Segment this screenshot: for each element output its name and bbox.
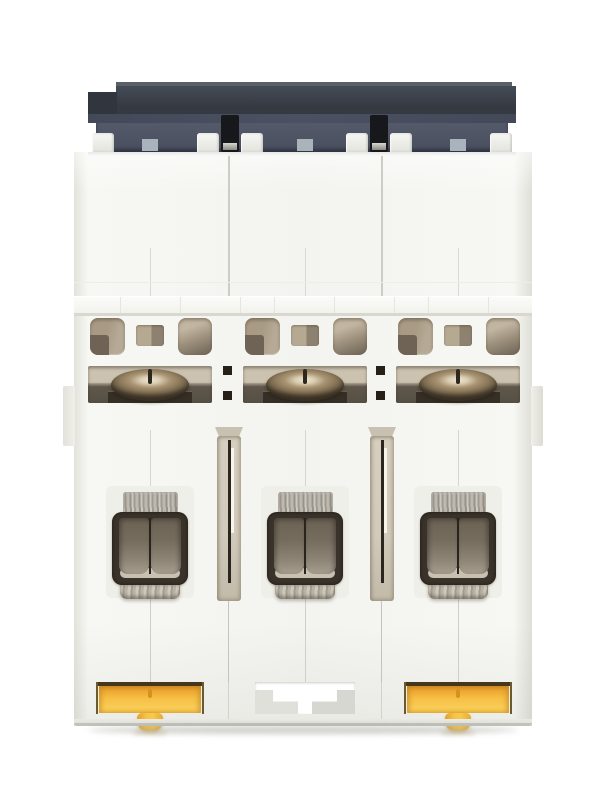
din-clip-slot-side bbox=[202, 682, 204, 714]
mold-seam-mid bbox=[458, 430, 459, 492]
mold-seam-upper bbox=[305, 248, 306, 296]
mold-seam-mid bbox=[305, 430, 306, 492]
din-clip-slot-side bbox=[510, 682, 512, 714]
terminal-cutout-c bbox=[486, 318, 520, 355]
screw-driver-slit bbox=[303, 369, 307, 384]
divider-channel-glint bbox=[231, 448, 234, 533]
ledge-seam bbox=[180, 297, 181, 313]
window-panel bbox=[427, 518, 457, 574]
divider-channel-glint bbox=[384, 448, 387, 533]
cap-layer-mid bbox=[88, 114, 516, 123]
mounting-tab bbox=[346, 133, 368, 152]
circuit-breaker bbox=[0, 0, 600, 800]
divider-square-hole bbox=[376, 391, 385, 400]
mounting-tab bbox=[92, 133, 114, 152]
pole-divider-seam-bottom bbox=[228, 682, 229, 722]
pole-divider-seam-upper bbox=[228, 156, 230, 296]
terminal-cutout-b bbox=[136, 325, 164, 346]
band-line bbox=[74, 282, 532, 283]
mounting-tab bbox=[390, 133, 412, 152]
terminal-cutout-c bbox=[333, 318, 367, 355]
window-panel bbox=[274, 518, 304, 574]
ledge-seam bbox=[334, 297, 335, 313]
din-rail-ear-left bbox=[63, 386, 75, 446]
mold-seam-upper bbox=[150, 248, 151, 296]
screw-driver-slit bbox=[456, 369, 460, 384]
din-rail-ear-right bbox=[531, 386, 543, 446]
din-clip-slot-side bbox=[404, 682, 406, 714]
mold-seam-lower bbox=[150, 597, 151, 682]
cutout-a-inner-shadow bbox=[90, 335, 109, 355]
pole-divider-seam-lower bbox=[228, 601, 229, 682]
ledge-seam bbox=[274, 297, 275, 313]
mounting-tab bbox=[241, 133, 263, 152]
window-panel bbox=[151, 518, 181, 574]
ledge-seam bbox=[394, 297, 395, 313]
mounting-tab bbox=[197, 133, 219, 152]
mold-seam-lower bbox=[305, 597, 306, 682]
pole-link-pin-glint bbox=[223, 143, 237, 150]
ledge-seam bbox=[120, 297, 121, 313]
pole-link-pin-glint bbox=[372, 143, 386, 150]
divider-square-hole bbox=[376, 366, 385, 375]
cap-slab bbox=[116, 86, 516, 114]
cutout-a-inner-shadow bbox=[398, 335, 417, 355]
divider-square-hole bbox=[223, 391, 232, 400]
ledge-seam bbox=[488, 297, 489, 313]
mold-seam-upper bbox=[458, 248, 459, 296]
pole-divider-seam-lower bbox=[381, 601, 382, 682]
ledge-seam bbox=[240, 297, 241, 313]
din-clip-slot-side bbox=[96, 682, 98, 714]
vent-slot bbox=[450, 139, 466, 151]
terminal-cutout-c bbox=[178, 318, 212, 355]
pole-divider-seam-bottom bbox=[381, 682, 382, 722]
mold-seam-lower bbox=[458, 597, 459, 682]
din-clip-mark bbox=[148, 689, 152, 698]
terminal-cutout-b bbox=[444, 325, 472, 346]
cap-slab-left-step bbox=[88, 92, 117, 114]
photo-canvas bbox=[0, 0, 600, 800]
ledge-seam bbox=[428, 297, 429, 313]
cutout-a-inner-shadow bbox=[245, 335, 264, 355]
screw-driver-slit bbox=[148, 369, 152, 384]
vent-slot bbox=[297, 139, 313, 151]
window-panel bbox=[459, 518, 489, 574]
din-clip-mark bbox=[456, 689, 460, 698]
drop-shadow bbox=[88, 726, 518, 734]
mold-seam-mid bbox=[150, 430, 151, 492]
vent-slot bbox=[142, 139, 158, 151]
terminal-cutout-b bbox=[291, 325, 319, 346]
divider-square-hole bbox=[223, 366, 232, 375]
ledge-shadow bbox=[74, 313, 532, 316]
pole-divider-seam-upper bbox=[381, 156, 383, 296]
body-sheen bbox=[74, 152, 532, 726]
mounting-tab bbox=[490, 133, 512, 152]
window-panel bbox=[119, 518, 149, 574]
window-panel bbox=[306, 518, 336, 574]
